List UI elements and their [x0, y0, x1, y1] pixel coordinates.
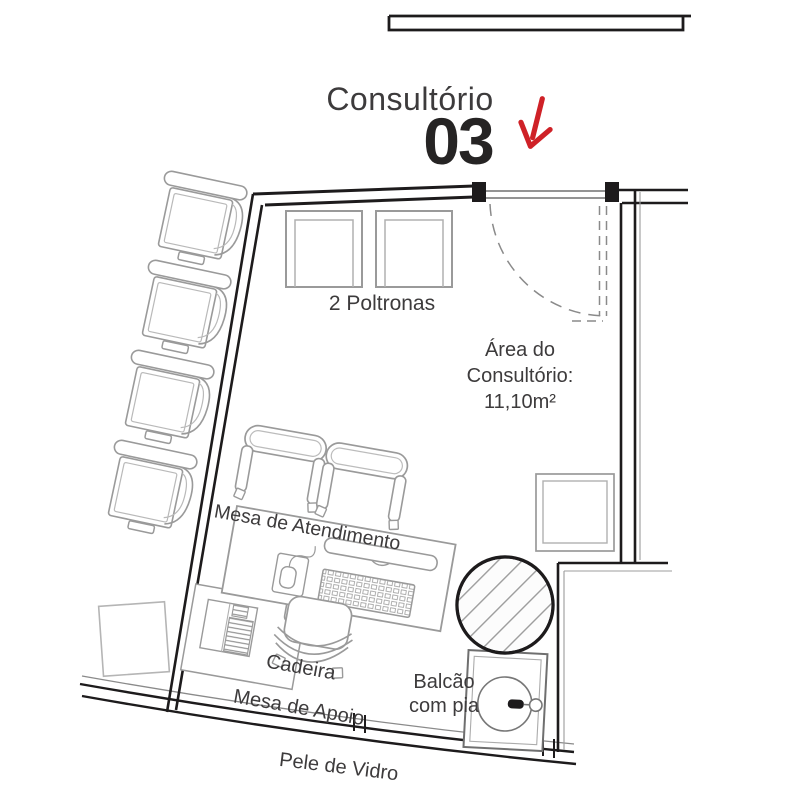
unit-number: 03	[423, 104, 493, 178]
armchair	[286, 211, 362, 287]
waiting-chair	[98, 439, 199, 540]
waiting-chair	[115, 349, 216, 450]
column	[457, 557, 553, 653]
printer	[200, 599, 258, 656]
area-label: Área do Consultório: 11,10m²	[467, 338, 574, 413]
visitor-chair	[314, 441, 411, 531]
corridor-wall	[389, 16, 691, 30]
exterior-table	[99, 602, 170, 676]
door-leaf	[572, 206, 607, 321]
door-jamb	[472, 182, 486, 202]
svg-text:Consultório:: Consultório:	[467, 365, 574, 387]
side-cabinet	[536, 474, 614, 551]
waiting-chair	[148, 170, 249, 271]
svg-text:com pia: com pia	[409, 695, 480, 717]
svg-text:Balcão: Balcão	[413, 671, 474, 693]
door	[472, 182, 619, 321]
armchair	[376, 211, 452, 287]
waiting-chair	[132, 259, 233, 360]
door-jamb	[605, 182, 619, 202]
armchairs-label: 2 Poltronas	[329, 292, 435, 315]
door-swing-arc	[490, 204, 607, 316]
direction-arrow-icon	[516, 95, 557, 150]
floor-plan-svg: Consultório 03	[0, 0, 800, 800]
svg-text:Área do: Área do	[485, 338, 555, 361]
desk-mouse	[279, 566, 297, 589]
glass-facade-label: Pele de Vidro	[278, 749, 400, 785]
visitor-chair	[233, 423, 330, 513]
floor-plan-page: Consultório 03	[0, 0, 800, 800]
armchairs	[286, 211, 452, 287]
svg-text:11,10m²: 11,10m²	[484, 391, 556, 413]
